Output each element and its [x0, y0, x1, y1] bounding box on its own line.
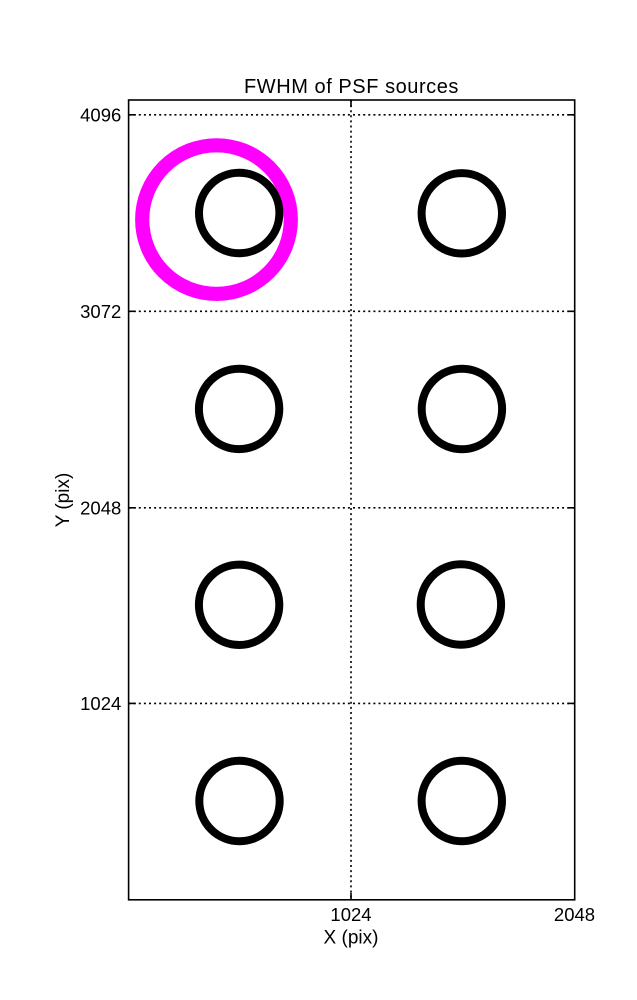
svg-text:FWHM of PSF sources: FWHM of PSF sources	[244, 76, 459, 98]
svg-text:2048: 2048	[554, 904, 595, 925]
svg-text:1024: 1024	[330, 904, 371, 925]
svg-text:4096: 4096	[80, 104, 121, 125]
svg-text:Y (pix): Y (pix)	[53, 473, 74, 528]
svg-text:X (pix): X (pix)	[324, 928, 379, 949]
svg-text:1024: 1024	[80, 693, 121, 714]
svg-text:3072: 3072	[80, 301, 121, 322]
svg-text:2048: 2048	[80, 497, 121, 518]
